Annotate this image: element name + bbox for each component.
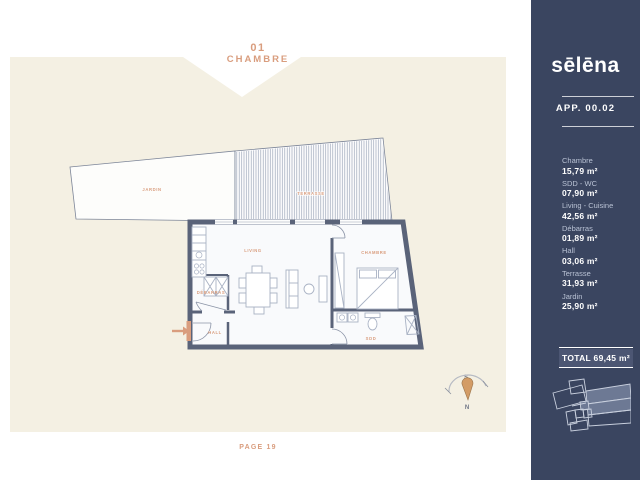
compass-needle [462,378,473,400]
divider [559,367,633,368]
divider [562,96,634,97]
label-hall: HALL [208,330,222,335]
compass-icon: S N [445,375,488,411]
building-keyplan-icon [542,376,631,432]
plan-number: 01 [10,43,506,54]
brand-logo: sēlēna [531,54,640,78]
apartment-label: APP. 00.02 [531,103,640,114]
garden-area [70,151,235,221]
compass-north: N [465,405,469,411]
tv-bench [319,276,327,302]
wardrobe [335,253,344,308]
kitchen-counter [192,227,206,277]
label-jardin: JARDIN [142,187,161,192]
list-item: Hall 03,06 m² [562,246,637,269]
label-debarras: DÉBARRAS [197,290,226,295]
list-item: Débarras 01,89 m² [562,224,637,247]
divider [562,126,634,127]
bed [357,268,398,309]
side-table [304,284,314,294]
label-sdd: SDD [366,336,377,341]
list-item: Jardin 25,90 m² [562,292,637,315]
list-item: SDD - WC 07,90 m² [562,179,637,202]
entrance-marker [172,321,191,341]
label-chambre: CHAMBRE [361,250,387,255]
label-living: LIVING [244,248,262,253]
label-terrasse: TERRASSE [297,191,325,196]
page-title: 01 CHAMBRE [10,43,506,66]
page-number: PAGE 19 [10,444,506,451]
room-area-list: Chambre 15,79 m² SDD - WC 07,90 m² Livin… [562,156,637,314]
list-item: Chambre 15,79 m² [562,156,637,179]
list-item: Living - Cuisine 42,56 m² [562,201,637,224]
terrace-area [235,138,392,221]
sidebar: sēlēna APP. 00.02 Chambre 15,79 m² SDD -… [531,0,640,480]
list-item: Terrasse 31,93 m² [562,269,637,292]
floor-plan: JARDIN TERRASSE LIVING CHAMBRE DÉBARRAS … [10,57,506,432]
sofa [286,270,298,308]
plan-title: CHAMBRE [10,54,506,66]
total-area-badge: TOTAL 69,45 m² [559,349,633,367]
